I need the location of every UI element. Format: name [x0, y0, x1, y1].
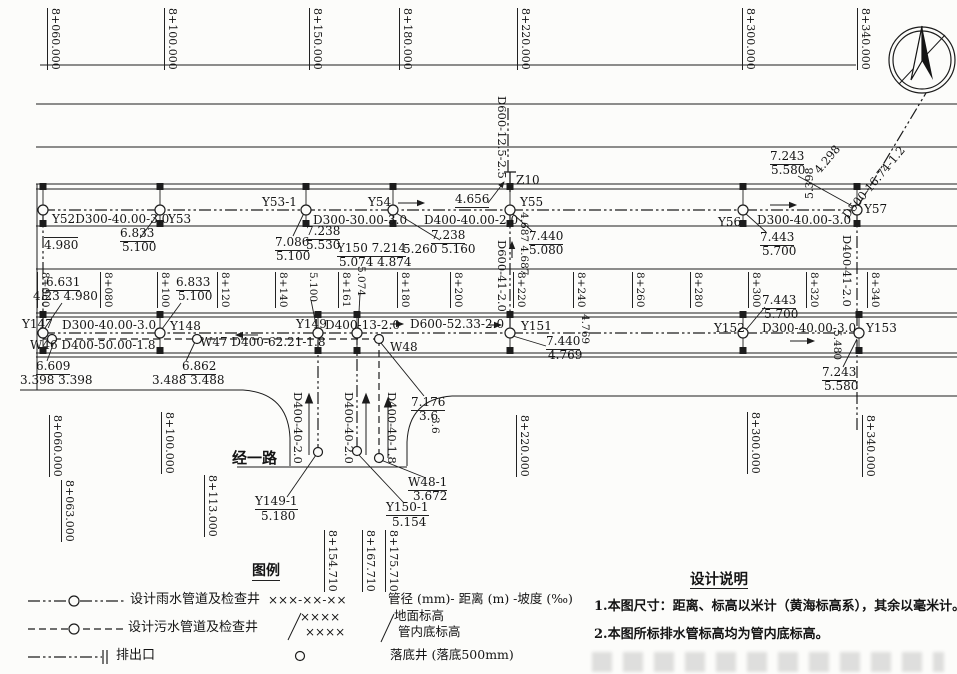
station-mid-8+340: 8+340 — [867, 272, 880, 308]
station-top-8+060.000: 8+060.000 — [47, 8, 61, 70]
road-name: 经一路 — [232, 451, 277, 467]
station-top-8+150.000: 8+150.000 — [309, 8, 323, 70]
legend-outlet-label: 排出口 — [116, 649, 155, 663]
elev: 4.769 — [548, 349, 582, 362]
elev: 3.398 3.398 — [20, 374, 93, 387]
elev: 3.672 — [413, 490, 447, 503]
elev: 5.398 — [804, 168, 816, 200]
legend-frac-top: ×××× — [300, 611, 340, 624]
sewer-manhole-W48 — [375, 335, 384, 344]
well-label: Y57 — [864, 203, 887, 216]
station-bottom-8+113.000: 8+113.000 — [204, 475, 218, 537]
pipe-spec: D400-40-2.0 — [292, 392, 304, 464]
legend-title: 图例 — [252, 564, 280, 581]
pipe-spec: D600-12.5-2.5 — [496, 96, 508, 179]
drainage-plan-drawing: 8+060.0008+100.0008+150.0008+180.0008+22… — [0, 0, 957, 674]
manhole-Y52 — [38, 183, 48, 227]
pipe-spec: W47 D400-62.21-1.8 — [200, 336, 326, 349]
station-mid-8+100: 8+100 — [157, 272, 170, 308]
manhole-W48-1 — [375, 454, 384, 463]
station-bottom-8+167.710: 8+167.710 — [362, 530, 376, 592]
well-label: Y150-1 — [386, 501, 429, 516]
well-label: Y53 — [168, 213, 191, 226]
elev: 5.480 — [831, 330, 842, 360]
station-bottom-8+220.000: 8+220.000 — [516, 415, 530, 477]
elev: 5.580 — [771, 164, 805, 177]
legend-code-meaning: 管径 (mm)- 距离 (m) -坡度 (‰) — [388, 592, 573, 605]
pipe-spec: W46 D400-50.00-1.8 — [30, 339, 156, 352]
elev: 5.154 — [392, 516, 426, 529]
well-label: Y54 — [368, 196, 391, 209]
station-mid-8+080: 8+080 — [100, 272, 113, 308]
pipe-spec: D400-41-2.0 — [841, 235, 853, 307]
station-mid-8+200: 8+200 — [450, 272, 463, 308]
station-bottom-8+063.000: 8+063.000 — [61, 480, 75, 542]
well-label: Y149-1 — [255, 495, 298, 510]
elev: 5.700 — [764, 308, 798, 321]
pipe-spec: D400-40-2.0 — [343, 392, 355, 464]
elev: 4.23 4.980 — [33, 290, 98, 303]
pipe-spec: Y52D300-40.00-3.0 — [52, 213, 169, 226]
station-top-8+180.000: 8+180.000 — [399, 8, 413, 70]
well-label: Y55 — [520, 196, 543, 209]
station-bottom-8+060.000: 8+060.000 — [49, 415, 63, 477]
elev: 5.580 — [824, 380, 858, 393]
faint-watermark — [592, 652, 944, 672]
station-bottom-8+175.710: 8+175.710 — [385, 530, 399, 592]
manhole-Y53-1 — [301, 183, 311, 227]
pipe-spec: D300-40.00-3.0 — [757, 214, 851, 227]
well-label: Y151 — [521, 320, 552, 333]
elev: 5.074 — [355, 266, 366, 296]
elev: 4.980 — [44, 237, 78, 252]
station-bottom-8+154.710: 8+154.710 — [324, 530, 338, 592]
manhole-Y148 — [155, 311, 165, 354]
station-bottom-8+100.000: 8+100.000 — [161, 412, 175, 474]
drawing-canvas — [0, 0, 957, 674]
legend-rain-label: 设计雨水管道及检查井 — [130, 593, 260, 607]
pipe-spec: D300-40.00-3.0 — [62, 319, 156, 332]
elev: 5.100 — [307, 272, 318, 302]
elev: 4.656 — [455, 193, 489, 208]
elev: 4.769 — [579, 314, 590, 344]
notes-title: 设计说明 — [690, 572, 748, 589]
legend-code-pattern: ×××-××-×× — [268, 594, 347, 607]
well-label: Y152 — [714, 322, 745, 335]
elev: 5.530 — [306, 239, 340, 252]
well-label: Y149 — [296, 318, 327, 331]
north-compass-icon — [889, 26, 955, 93]
elev: 5.080 — [529, 244, 563, 257]
station-mid-8+260: 8+260 — [632, 272, 645, 308]
well-label: Y153 — [866, 322, 897, 335]
well-label: Y148 — [170, 320, 201, 333]
pipe-spec: D400-13-2.0 — [325, 319, 400, 332]
station-mid-8+161: 8+161 — [338, 272, 351, 308]
station-mid-8+320: 8+320 — [806, 272, 819, 308]
well-label: Y147 — [22, 318, 53, 331]
legend-drop-well-icon — [296, 652, 305, 661]
legend-frac-meaning-top: 地面标高 — [394, 609, 444, 622]
elev: 4.687 4.687 — [518, 212, 529, 275]
well-label: Z10 — [516, 174, 540, 187]
station-mid-8+300: 8+300 — [748, 272, 761, 308]
manhole-Y149-1 — [314, 448, 323, 457]
manhole-Y151 — [505, 311, 515, 354]
elev: 5.100 — [178, 290, 212, 303]
legend-sewer-label: 设计污水管道及检查井 — [128, 621, 258, 635]
pipe-spec: D400-40.00-2.0 — [424, 214, 518, 227]
station-mid-8+280: 8+280 — [690, 272, 703, 308]
station-mid-8+180: 8+180 — [397, 272, 410, 308]
legend-rain-manhole-icon — [69, 596, 79, 606]
station-bottom-8+300.000: 8+300.000 — [747, 412, 761, 474]
station-mid-8+140: 8+140 — [275, 272, 288, 308]
well-label: Y53-1 — [262, 196, 297, 209]
well-label: Y56 — [718, 216, 741, 229]
elev: 5.100 — [122, 241, 156, 254]
pipe-spec: D400-40-1.8 — [386, 392, 398, 464]
note-2: 2.本图所标排水管标高均为管内底标高。 — [594, 628, 829, 642]
legend-sewer-manhole-icon — [69, 624, 79, 634]
station-mid-8+240: 8+240 — [573, 272, 586, 308]
elev: 3.488 3.488 — [152, 374, 225, 387]
station-bottom-8+340.000: 8+340.000 — [862, 415, 876, 477]
station-top-8+100.000: 8+100.000 — [164, 8, 178, 70]
station-top-8+300.000: 8+300.000 — [742, 8, 756, 70]
legend-fraction-slash — [381, 614, 394, 642]
elev: 5.260 5.160 — [403, 243, 476, 256]
legend-frac-bottom: ×××× — [305, 626, 345, 639]
elev: 5.180 — [261, 510, 295, 523]
station-top-8+340.000: 8+340.000 — [857, 8, 871, 70]
station-mid-8+120: 8+120 — [217, 272, 230, 308]
station-top-8+220.000: 8+220.000 — [517, 8, 531, 70]
elev: 5.074 4.874 — [339, 256, 412, 269]
station-mid-8+220: 8+220 — [513, 272, 526, 308]
pipe-spec: D600-52.33-2.0 — [410, 318, 504, 331]
legend-frac-meaning-bottom: 管内底标高 — [398, 625, 461, 638]
legend-drop-well-label: 落底井 (落底500mm) — [390, 648, 514, 661]
pipe-spec: D600-41-2.0 — [496, 240, 508, 312]
elev: 3.6 — [429, 417, 440, 434]
road-lines — [20, 65, 957, 467]
elev: 5.700 — [762, 245, 796, 258]
well-label: W48 — [390, 341, 418, 354]
note-1: 1.本图尺寸：距离、标高以米计（黄海标高系），其余以毫米计。 — [594, 600, 957, 614]
